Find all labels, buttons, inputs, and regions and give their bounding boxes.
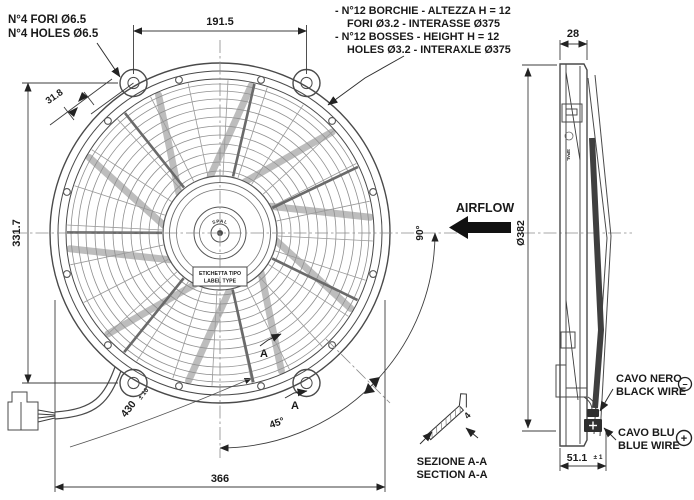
grill-spoke [278, 236, 373, 241]
connector-plug [8, 392, 38, 430]
grill-rib [272, 167, 358, 208]
grill-spoke [223, 80, 228, 175]
front-hole-note: N°4 FORI Ø6.5 N°4 HOLES Ø6.5 [8, 14, 120, 77]
grill-rib [125, 113, 184, 187]
top-width-value: 191.5 [206, 16, 234, 28]
fan-side-view: SPAL [556, 64, 611, 446]
wire-curve-bottom [55, 371, 121, 419]
boss-note-line2: FORI Ø3.2 - INTERASSE Ø375 [347, 18, 500, 30]
boss-stud [64, 271, 71, 278]
side-tab-top-slot [566, 109, 577, 115]
dimension-51-1: 51.1 ± 1 [560, 430, 606, 471]
grill-spoke [67, 225, 162, 230]
side-logo-text: SPAL [566, 149, 571, 161]
section-title: SECTION A-A [416, 469, 487, 481]
wire-length-tolerance: ± 10 [137, 387, 151, 402]
section-mark-a-lower: A [291, 400, 299, 412]
wire-length-dim: 430 [119, 398, 139, 419]
drawing-canvas: 430 ± 10 [0, 0, 694, 500]
boss-note: - N°12 BORCHIE - ALTEZZA H = 12 FORI Ø3.… [328, 5, 511, 105]
boss-stud [329, 118, 336, 125]
bracket-depth-tolerance: ± 1 [594, 454, 603, 461]
boss-stud [370, 189, 377, 196]
fan-blade [276, 241, 350, 309]
fan-diameter-value: Ø382 [515, 220, 527, 246]
airflow-label: AIRFLOW [456, 201, 515, 215]
wire-strand [38, 418, 55, 422]
blue-wire-label: BLUE WIRE [618, 440, 680, 452]
boss-stud [370, 271, 377, 278]
wire-curve-top [55, 367, 115, 412]
section-mark-a-upper: A [260, 348, 268, 360]
minus-symbol-text: − [682, 380, 687, 390]
side-tab-mid [561, 332, 575, 348]
wire-strand [38, 416, 55, 418]
boss-stud [258, 383, 265, 390]
diagonal-centerline-45 [326, 339, 390, 403]
tab-offset-value: 31.8 [44, 87, 65, 107]
boss-note-line3: - N°12 BOSSES - HEIGHT H = 12 [335, 31, 499, 43]
cavo-nero-label: CAVO NERO [616, 373, 682, 385]
front-note-line2: N°4 HOLES Ø6.5 [8, 28, 99, 40]
section-detail: 4 SEZIONE A-A SECTION A-A [416, 391, 487, 481]
bracket-depth-value: 51.1 [567, 452, 588, 464]
wire-strand [38, 414, 55, 415]
boss-stud [258, 77, 265, 84]
black-wire-label: BLACK WIRE [616, 386, 686, 398]
boss-note-line4: HOLES Ø3.2 - INTERAXLE Ø375 [347, 44, 511, 56]
boss-stud [105, 118, 112, 125]
dimension-28: 28 [560, 28, 587, 60]
grill-rib [124, 278, 184, 352]
boss-stud [105, 342, 112, 349]
black-wire-terminal [587, 409, 599, 417]
boss-stud [176, 77, 183, 84]
boss-stud [176, 383, 183, 390]
side-depth-value: 28 [567, 28, 579, 40]
mounting-tab-bottom-left [120, 370, 147, 397]
black-wire-callout: CAVO NERO BLACK WIRE − [600, 373, 692, 411]
fan-blade [89, 158, 163, 226]
bottom-width-value: 366 [211, 473, 229, 485]
wire-length-arc [70, 378, 252, 447]
airflow-indicator: AIRFLOW [449, 201, 514, 239]
boss-stud [64, 189, 71, 196]
cavo-blu-label: CAVO BLU [618, 427, 675, 439]
side-tab-top [562, 104, 582, 122]
section-thickness-value: 4 [462, 410, 473, 420]
wire-strand [38, 410, 55, 413]
grill-spoke [212, 291, 217, 386]
fan-technical-drawing: 430 ± 10 [0, 0, 694, 500]
left-height-value: 331.7 [11, 219, 23, 247]
airflow-arrow-icon [449, 216, 511, 239]
angle-90-label: 90° [415, 225, 426, 240]
dimension-382: Ø382 [515, 65, 557, 431]
boss-note-line1: - N°12 BORCHIE - ALTEZZA H = 12 [335, 5, 511, 17]
angle-45-label: 45° [268, 416, 286, 432]
sezione-title: SEZIONE A-A [417, 456, 488, 468]
blue-wire-callout: CAVO BLU BLUE WIRE + [604, 427, 692, 452]
front-note-line1: N°4 FORI Ø6.5 [8, 14, 87, 26]
plus-symbol-text: + [681, 433, 687, 445]
arc-tick-arrow-down [364, 383, 375, 394]
